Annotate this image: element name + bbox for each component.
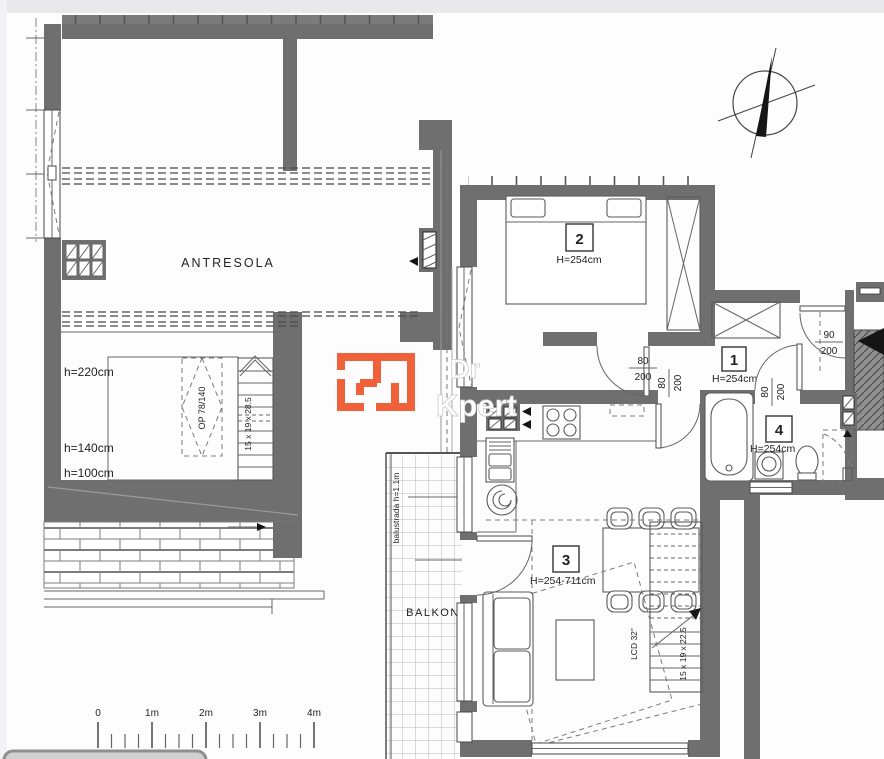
svg-text:80: 80 [637,356,649,367]
room4-number: 4 [775,422,784,439]
svg-text:80: 80 [760,386,771,398]
scale-0: 0 [95,708,101,719]
scale-4m: 4m [307,708,321,719]
room1-number: 1 [730,352,738,369]
scale-1m: 1m [145,708,159,719]
watermark-logo-gap1 [335,370,346,379]
height-label-100: h=100cm [64,466,114,480]
scale-bar: 0 1m 2m 3m 4m [95,708,321,748]
sink [755,452,783,479]
svg-text:90: 90 [823,330,835,341]
skylight: OP 78/140 [182,358,222,456]
room2-height: H=254cm [556,254,601,266]
height-label-220: h=220cm [64,365,114,379]
boiler [487,485,517,515]
vent-shaft-block [62,240,106,280]
room1-height: H=254cm [712,373,757,385]
upper-cabinet [610,405,644,416]
balkon-label: BALKON [406,607,460,619]
hall-kitchen-door [656,404,700,448]
bathtub [705,393,753,481]
radiator [409,228,440,272]
watermark-logo-gap2 [364,402,376,412]
bathroom-door [755,344,802,390]
room3-number: 3 [562,552,570,569]
axis-line-left [26,18,44,242]
bathroom: 4 H=254cm [705,393,857,493]
height-label-140: h=140cm [64,441,114,455]
svg-text:80: 80 [657,377,668,389]
room3-height: H=254-711cm [530,575,596,587]
watermark-text-1: Dr [450,354,480,384]
bathroom-door-size: 80 200 [760,378,787,406]
hall-kitchen-door-size: 80 200 [657,369,684,397]
sofa [483,592,533,706]
bedroom-door-size: 80 200 [629,356,657,383]
room4-height: H=254cm [750,443,795,455]
balustrade-note: balustrada h=1.1m [391,473,401,544]
antresola-left-window [44,110,60,238]
right-building: 2 H=254cm 80 200 1 H=254cm 90 [457,176,884,759]
room2-number: 2 [575,231,583,248]
bedroom-door [597,346,649,396]
scale-2m: 2m [199,708,213,719]
tv-note: LCD 32" [629,628,639,660]
wardrobe-hall [712,302,780,338]
stairs-upper-note: 15 x 19 x 28.5 [243,397,253,451]
bottom-plate [4,751,206,759]
west-windows [457,267,472,742]
svg-text:200: 200 [821,346,838,357]
north-arrow [718,48,815,158]
skylight-label: OP 78/140 [197,387,207,430]
antresola-label: ANTRESOLA [181,256,275,270]
watermark-text-2: Kpert [436,388,517,423]
svg-text:200: 200 [673,374,684,391]
svg-text:200: 200 [776,383,787,400]
watermark: Dr Kpert [335,354,517,423]
floor-plan-canvas: OP 78/140 15 x 19 x 28.5 ANTRESOLA h=220… [0,0,884,759]
scale-3m: 3m [253,708,267,719]
ceiling-break-lines [62,168,433,326]
watermark-logo-icon [341,357,411,407]
svg-text:200: 200 [635,372,652,383]
balcony-door [477,536,532,595]
kitchen-sink [486,438,514,482]
hob [543,406,580,439]
stairs-lower-note: 15 x 19 x 22.5 [678,627,688,681]
roof-brick-hatch [44,522,324,614]
dining-set [603,508,699,612]
toilet [796,446,818,480]
entrance-door-size: 90 200 [815,330,843,357]
coffee-table [556,620,594,680]
wardrobe-bedroom [667,197,700,330]
bedroom: 2 H=254cm 80 200 [506,196,700,396]
stairs-upper-flight: 15 x 19 x 28.5 [238,356,273,480]
living-room: 15 x 19 x 22.5 LCD 32" 3 H=254-711cm [477,508,702,754]
